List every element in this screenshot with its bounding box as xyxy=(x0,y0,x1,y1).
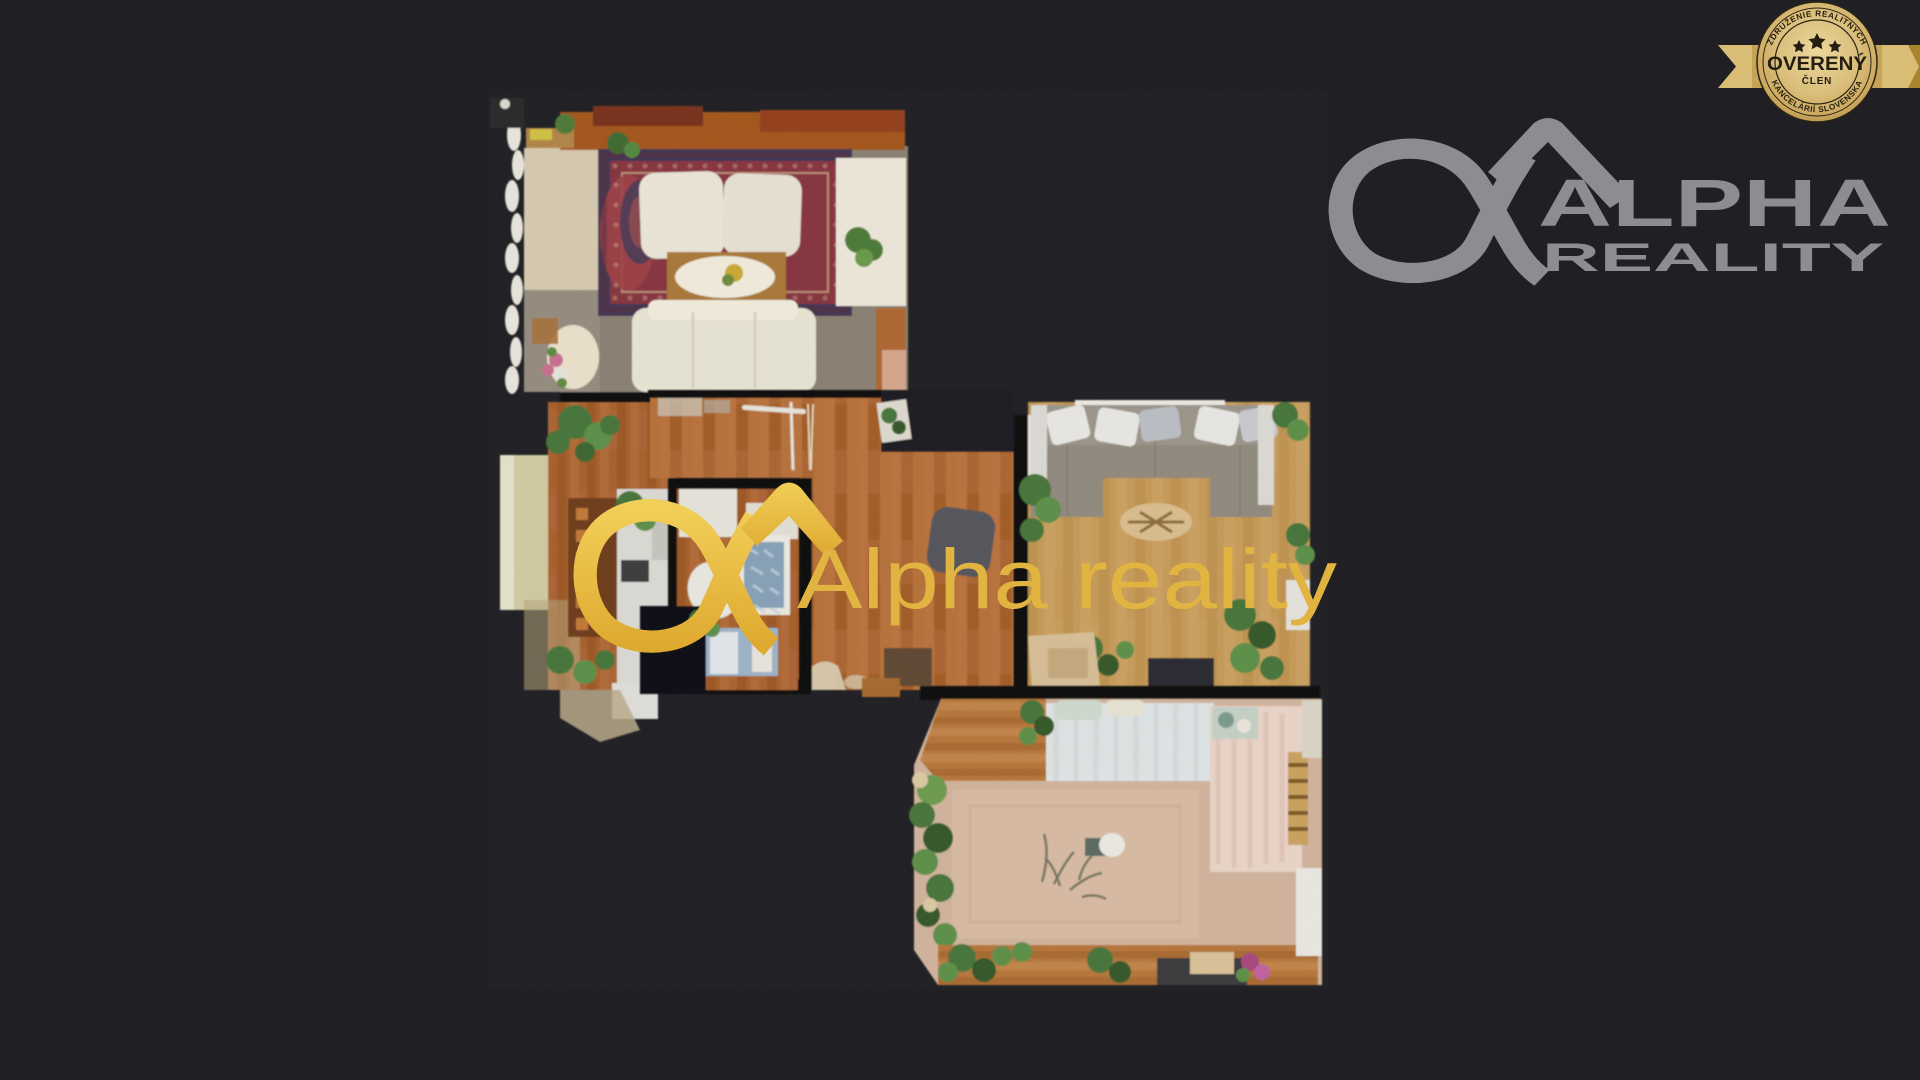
svg-text:ALPHA: ALPHA xyxy=(1538,166,1891,241)
svg-text:ČLEN: ČLEN xyxy=(1802,74,1832,87)
svg-text:OVERENÝ: OVERENÝ xyxy=(1767,53,1867,75)
svg-text:REALITY: REALITY xyxy=(1542,236,1885,280)
